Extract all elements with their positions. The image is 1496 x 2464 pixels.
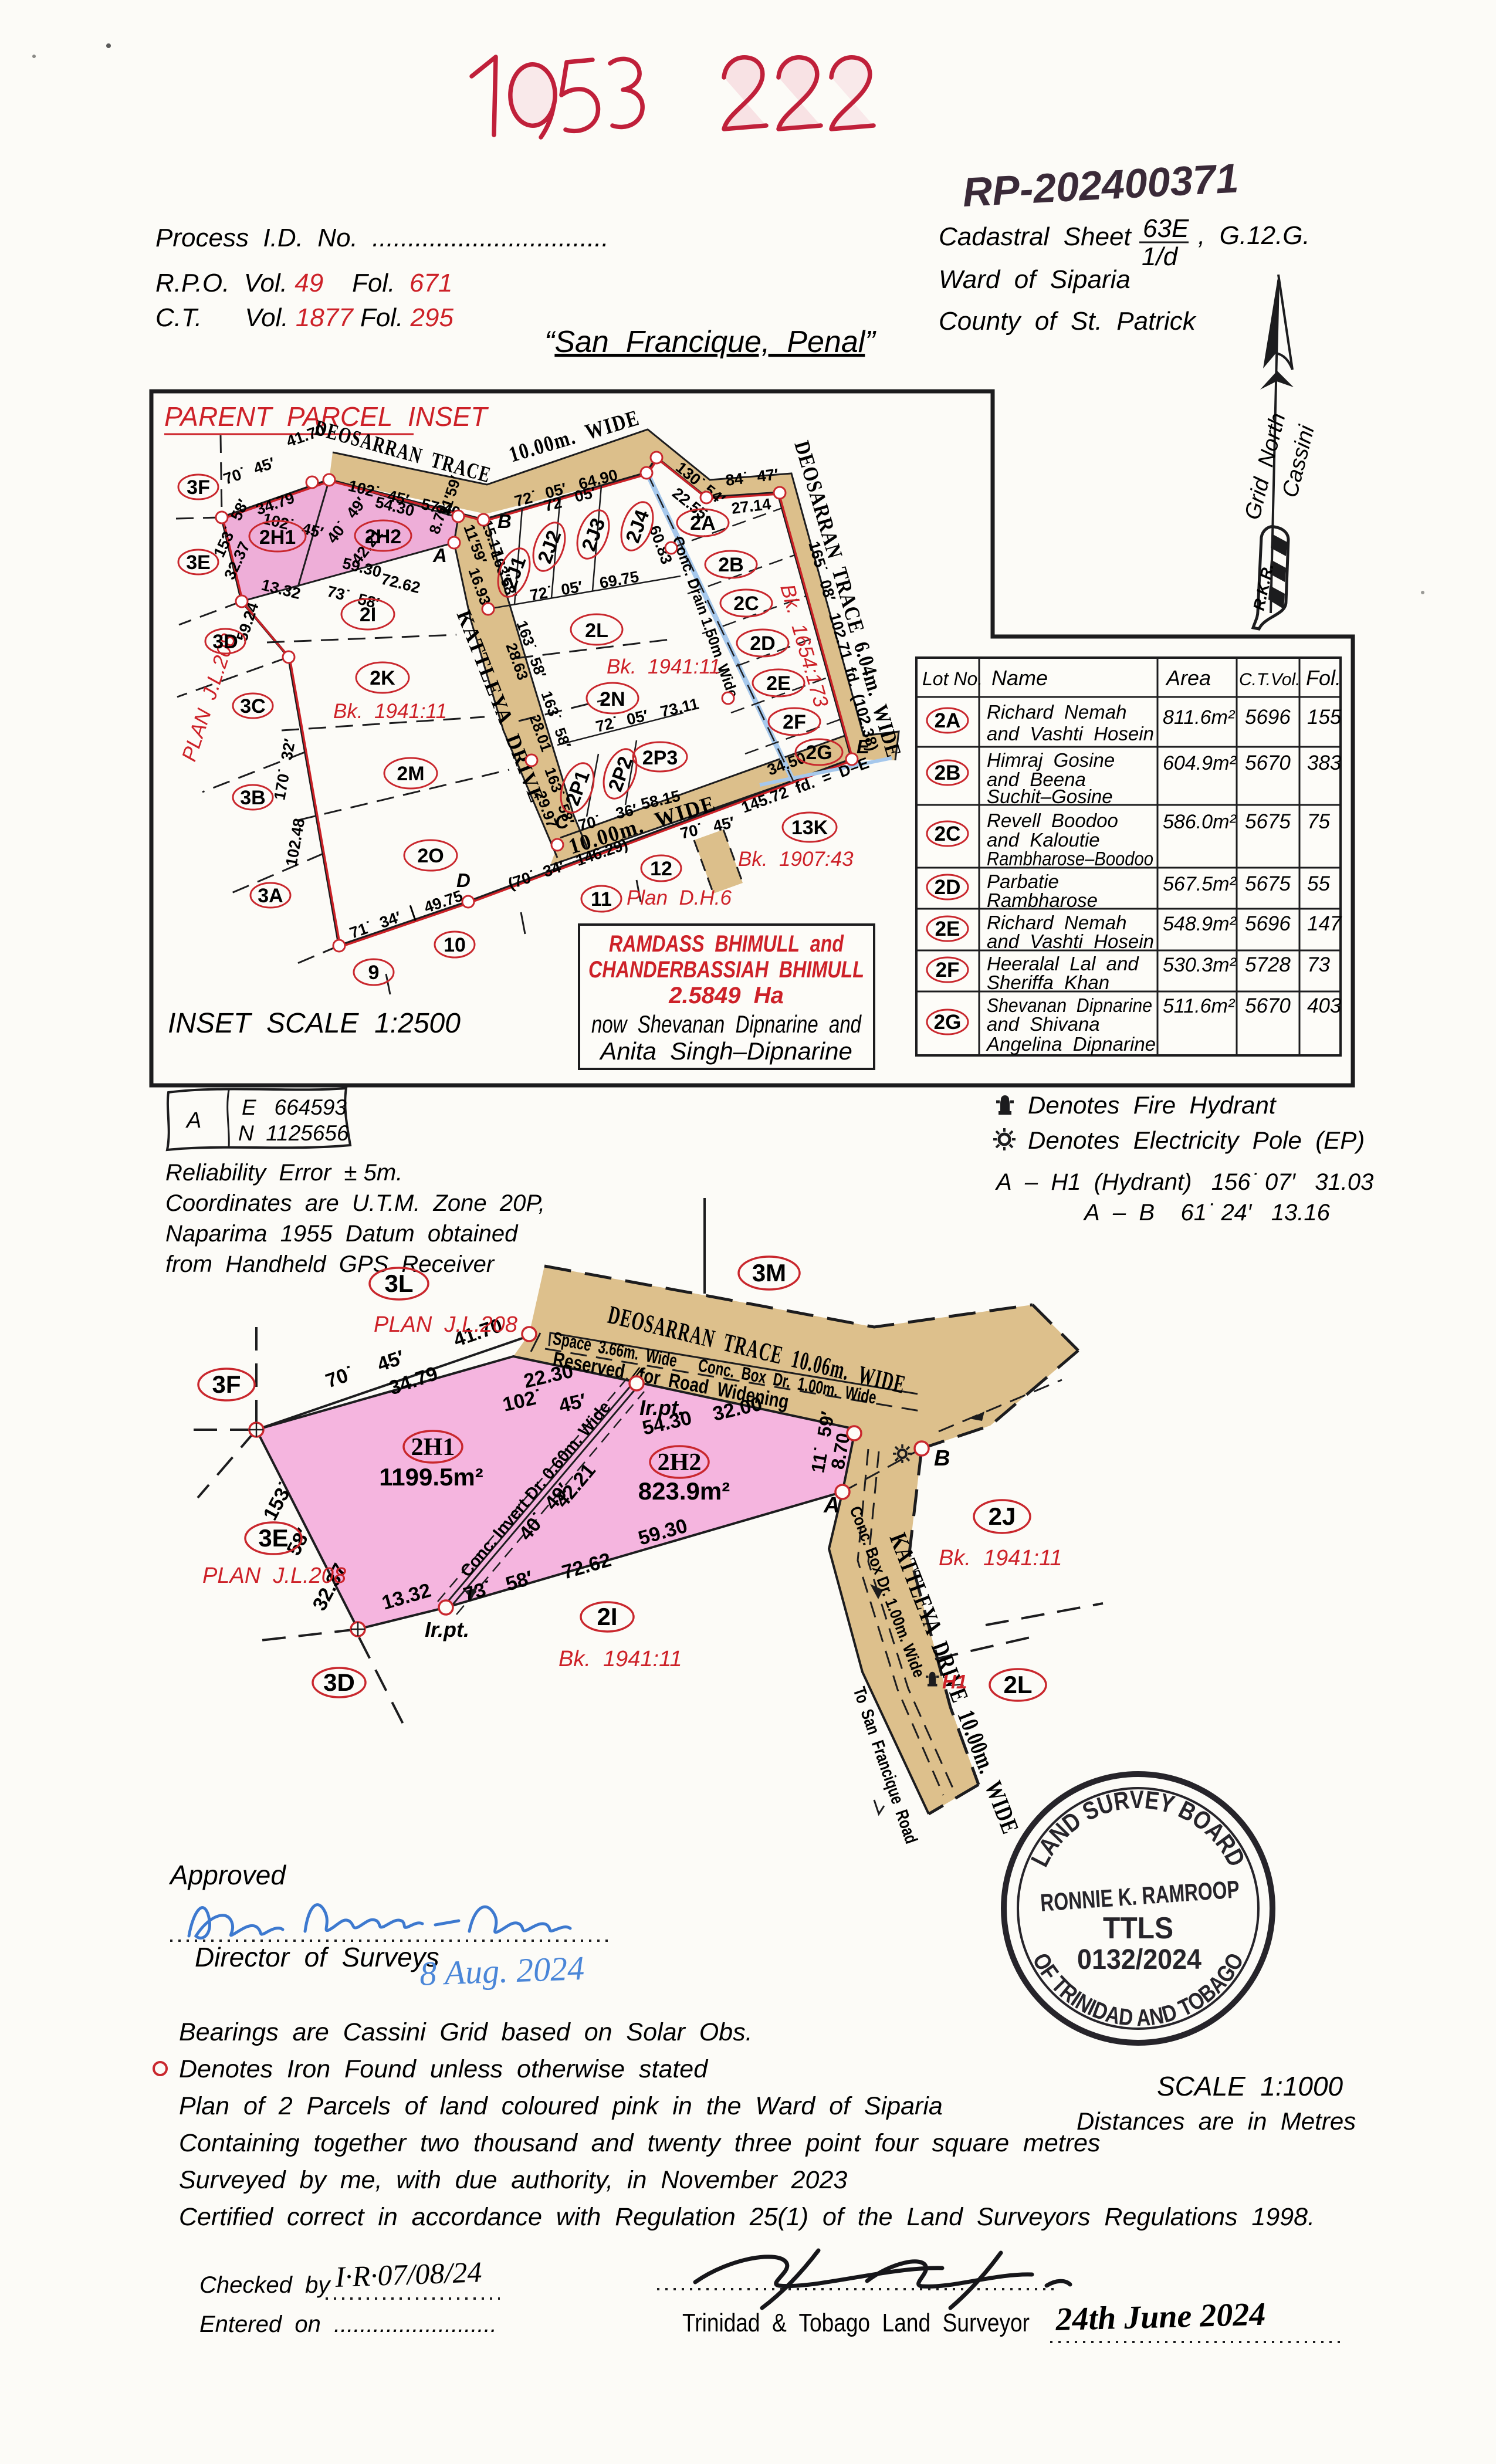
svg-text:Ir.pt.: Ir.pt. (639, 1396, 684, 1420)
svg-text:Name: Name (991, 666, 1048, 690)
svg-text:A: A (432, 544, 447, 566)
svg-text:Bearings are Cassini Grid: Bearings are Cassini Grid based on Solar… (179, 2018, 753, 2046)
svg-text:County of St. Patrick: County of St. Patrick (939, 307, 1197, 336)
svg-text:Ir.pt.: Ir.pt. (425, 1617, 469, 1641)
svg-text:Rambharose: Rambharose (987, 889, 1098, 911)
svg-text:Certified correct in accord: Certified correct in accordance with Reg… (179, 2203, 1315, 2231)
svg-text:B: B (934, 1446, 950, 1471)
svg-text:Sheriffa Khan: Sheriffa Khan (987, 972, 1109, 993)
svg-text:PLAN J.L.208: PLAN J.L.208 (202, 1563, 346, 1588)
svg-text:Trinidad & Tobago Land Sur: Trinidad & Tobago Land Surveyor (682, 2309, 1030, 2337)
svg-text:10: 10 (444, 934, 466, 956)
svg-text:I·R·07/08/24: I·R·07/08/24 (334, 2255, 482, 2293)
svg-text:5670: 5670 (1245, 994, 1291, 1017)
svg-text:, G.12.G.: , G.12.G. (1198, 221, 1310, 250)
svg-text:Ward of Siparia: Ward of Siparia (939, 265, 1131, 294)
svg-text:2H2: 2H2 (658, 1449, 702, 1476)
svg-text:2M: 2M (397, 763, 424, 785)
svg-text:0132/2024: 0132/2024 (1077, 1944, 1201, 1975)
svg-text:from Handheld GPS Receiver: from Handheld GPS Receiver (165, 1251, 495, 1277)
svg-text:SCALE 1:1000: SCALE 1:1000 (1157, 2071, 1343, 2101)
svg-text:24th June 2024: 24th June 2024 (1055, 2296, 1266, 2338)
svg-text:511.6m²: 511.6m² (1163, 995, 1236, 1017)
svg-text:9: 9 (368, 962, 380, 984)
svg-text:823.9m²: 823.9m² (638, 1477, 730, 1505)
svg-text:155: 155 (1307, 706, 1342, 729)
svg-text:2H1: 2H1 (259, 526, 296, 549)
svg-text:383: 383 (1307, 752, 1342, 774)
svg-text:Process I.D. No. ..........: Process I.D. No. .......................… (155, 224, 609, 252)
svg-text:2H2: 2H2 (365, 526, 401, 548)
svg-text:E 664593: E 664593 (242, 1095, 347, 1119)
svg-text:Rambharose–Boodoo: Rambharose–Boodoo (987, 848, 1153, 869)
svg-text:Angelina Dipnarine: Angelina Dipnarine (986, 1033, 1156, 1055)
svg-text:and Vashti Hosein: and Vashti Hosein (987, 723, 1154, 744)
svg-text:Bk. 1941:11: Bk. 1941:11 (607, 655, 720, 678)
svg-text:3A: 3A (258, 885, 283, 907)
svg-text:1199.5m²: 1199.5m² (379, 1463, 483, 1491)
svg-text:3L: 3L (384, 1270, 413, 1297)
svg-text:“San Francique, Penal”: “San Francique, Penal” (544, 325, 876, 359)
svg-text:Denotes Fire Hydrant: Denotes Fire Hydrant (1028, 1091, 1277, 1119)
svg-text:2E: 2E (935, 918, 960, 940)
svg-text:Area: Area (1165, 666, 1211, 690)
svg-text:Denotes Electricity Pole (E: Denotes Electricity Pole (EP) (1028, 1126, 1365, 1154)
svg-text:Plan of 2 Parcels of land: Plan of 2 Parcels of land coloured pink … (179, 2092, 943, 2120)
svg-text:2L: 2L (1003, 1671, 1032, 1698)
svg-text:Bk. 1941:11: Bk. 1941:11 (939, 1546, 1062, 1571)
svg-text:548.9m²: 548.9m² (1163, 913, 1237, 935)
svg-text:Fol.: Fol. (1306, 666, 1341, 690)
svg-text:Bk. 1907:43: Bk. 1907:43 (738, 848, 854, 871)
svg-text:2C: 2C (733, 593, 759, 615)
svg-text:2F: 2F (936, 959, 960, 981)
svg-text:2C: 2C (935, 823, 961, 845)
svg-text:E: E (857, 736, 870, 757)
svg-text:2B: 2B (935, 761, 961, 784)
svg-text:2F: 2F (783, 711, 806, 733)
svg-text:Richard Nemah: Richard Nemah (987, 701, 1126, 723)
svg-text:8 Aug. 2024: 8 Aug. 2024 (419, 1949, 585, 1993)
svg-text:Director of Surveys: Director of Surveys (195, 1942, 439, 1972)
svg-text:2P3: 2P3 (642, 747, 678, 769)
svg-text:11: 11 (591, 888, 612, 911)
svg-text:B: B (497, 510, 512, 532)
svg-text:2I: 2I (360, 604, 376, 626)
svg-text:63E: 63E (1143, 214, 1189, 243)
svg-text:1/d: 1/d (1142, 242, 1179, 271)
svg-text:2D: 2D (935, 876, 961, 899)
svg-text:2A: 2A (690, 512, 715, 534)
svg-text:Containing together two tho: Containing together two thousand and twe… (179, 2129, 1100, 2157)
svg-text:530.3m²: 530.3m² (1163, 954, 1237, 976)
svg-text:TTLS: TTLS (1103, 1911, 1173, 1945)
svg-text:and Shivana: and Shivana (987, 1013, 1100, 1035)
svg-text:5728: 5728 (1245, 953, 1291, 976)
svg-text:A – H1 (Hydrant) 156˙ 07′: A – H1 (Hydrant) 156˙ 07′ 31.03 (995, 1169, 1373, 1195)
svg-text:5670: 5670 (1245, 752, 1291, 774)
svg-text:A – B 61˙ 24′ 13.16: A – B 61˙ 24′ 13.16 (1083, 1200, 1331, 1226)
svg-text:13K: 13K (791, 817, 828, 839)
svg-text:Checked by: Checked by (199, 2272, 343, 2298)
svg-text:PLAN J.L.208: PLAN J.L.208 (374, 1312, 517, 1337)
svg-text:12: 12 (650, 858, 672, 880)
svg-text:403: 403 (1307, 994, 1342, 1017)
svg-text:Suchit–Gosine: Suchit–Gosine (987, 786, 1113, 807)
svg-text:3E: 3E (186, 551, 211, 574)
svg-text:and Vashti Hosein: and Vashti Hosein (987, 930, 1154, 952)
svg-text:2A: 2A (935, 709, 961, 732)
svg-text:Naparima 1955 Datum obtaine: Naparima 1955 Datum obtained (165, 1221, 519, 1247)
svg-text:C.T.Vol.: C.T.Vol. (1239, 670, 1301, 689)
svg-text:Reliability Error ± 5m.: Reliability Error ± 5m. (165, 1160, 402, 1186)
svg-text:Bk. 1941:11: Bk. 1941:11 (559, 1647, 682, 1671)
svg-text:Lot No.: Lot No. (922, 668, 983, 689)
svg-text:3M: 3M (752, 1259, 786, 1287)
svg-text:811.6m²: 811.6m² (1163, 706, 1236, 729)
svg-text:75: 75 (1307, 810, 1330, 833)
svg-text:H1: H1 (942, 1671, 967, 1693)
svg-text:5675: 5675 (1245, 872, 1291, 895)
svg-text:3E: 3E (258, 1524, 288, 1552)
svg-text:Distances are in Metres: Distances are in Metres (1077, 2107, 1356, 2135)
svg-text:3B: 3B (240, 787, 265, 809)
svg-text:73: 73 (1307, 953, 1330, 976)
svg-text:2E: 2E (766, 672, 791, 695)
svg-text:2I: 2I (597, 1603, 617, 1630)
svg-text:CHANDERBASSIAH BHIMULL: CHANDERBASSIAH BHIMULL (588, 957, 864, 983)
svg-text:Entered on .................: Entered on ......................... (199, 2311, 497, 2337)
svg-text:2O: 2O (417, 845, 444, 867)
svg-text:55: 55 (1307, 872, 1330, 895)
svg-text:RAMDASS BHIMULL and: RAMDASS BHIMULL and (609, 931, 844, 957)
svg-text:Approved: Approved (168, 1860, 286, 1890)
svg-text:2D: 2D (750, 632, 775, 655)
svg-text:Denotes Iron Found unless: Denotes Iron Found unless otherwise stat… (179, 2055, 709, 2083)
svg-text:586.0m²: 586.0m² (1163, 811, 1237, 833)
svg-text:2L: 2L (585, 620, 608, 642)
svg-text:Surveyed by me, with due: Surveyed by me, with due authority, in N… (179, 2166, 847, 2194)
svg-text:5696: 5696 (1245, 912, 1291, 935)
svg-text:3F: 3F (212, 1370, 241, 1398)
svg-text:D: D (456, 869, 471, 891)
svg-text:3D: 3D (212, 631, 238, 653)
svg-text:567.5m²: 567.5m² (1163, 873, 1237, 895)
svg-text:Revell Boodoo: Revell Boodoo (987, 810, 1118, 831)
svg-text:2J: 2J (989, 1502, 1016, 1530)
svg-text:now Shevanan Dipnarine and: now Shevanan Dipnarine and (591, 1010, 862, 1038)
svg-text:3C: 3C (240, 695, 265, 717)
svg-text:2K: 2K (370, 667, 395, 689)
svg-text:Bk. 1941:11: Bk. 1941:11 (333, 700, 447, 723)
svg-text:C: C (555, 811, 570, 832)
svg-text:Himraj Gosine: Himraj Gosine (987, 749, 1115, 771)
svg-text:2G: 2G (934, 1011, 962, 1034)
svg-text:2H1: 2H1 (411, 1434, 455, 1461)
svg-text:147: 147 (1307, 912, 1342, 935)
svg-text:3F: 3F (187, 476, 210, 499)
svg-text:2B: 2B (718, 554, 743, 576)
svg-text:Plan D.H.6: Plan D.H.6 (627, 886, 732, 909)
svg-text:Cadastral Sheet: Cadastral Sheet (939, 222, 1132, 251)
svg-text:Coordinates are U.T.M. Zone: Coordinates are U.T.M. Zone 20P, (165, 1190, 545, 1216)
svg-text:A: A (185, 1108, 201, 1133)
svg-text:2N: 2N (600, 688, 625, 710)
svg-text:N 1125656: N 1125656 (238, 1121, 349, 1145)
svg-text:5675: 5675 (1245, 810, 1291, 833)
svg-text:C.T. Vol. 1877 Fol. 295: C.T. Vol. 1877 Fol. 295 (155, 303, 453, 332)
svg-text:Anita Singh–Dipnarine: Anita Singh–Dipnarine (598, 1037, 852, 1065)
svg-text:5696: 5696 (1245, 706, 1291, 729)
svg-text:2.5849 Ha: 2.5849 Ha (668, 983, 784, 1008)
svg-text:3D: 3D (323, 1668, 355, 1696)
svg-text:INSET SCALE 1:2500: INSET SCALE 1:2500 (168, 1008, 461, 1039)
svg-text:604.9m²: 604.9m² (1163, 752, 1237, 774)
svg-text:2G: 2G (805, 742, 832, 764)
svg-text:R.P.O. Vol. 49 Fol. 671: R.P.O. Vol. 49 Fol. 671 (155, 269, 452, 297)
